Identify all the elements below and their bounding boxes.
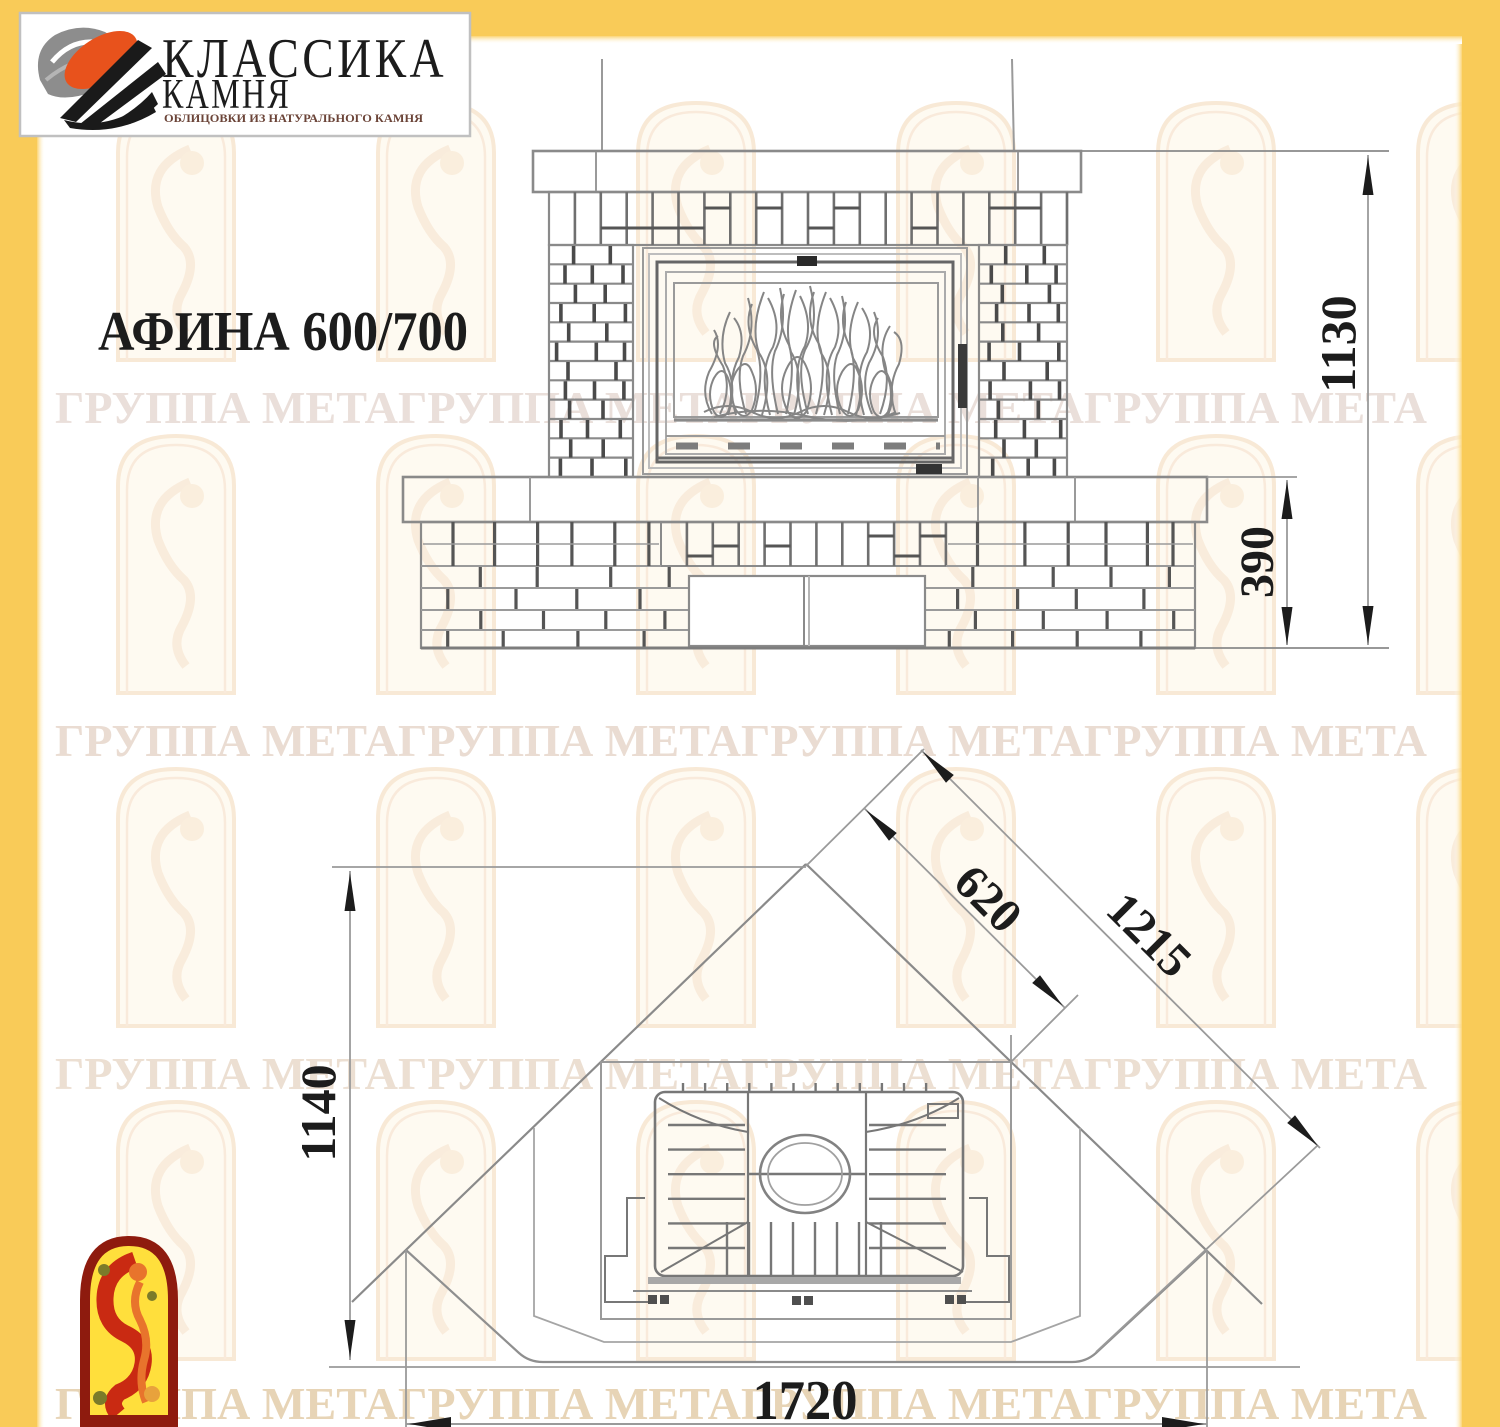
svg-text:1720: 1720	[753, 1370, 858, 1427]
svg-text:ГРУППА МЕТАГРУППА МЕТАГРУППА М: ГРУППА МЕТАГРУППА МЕТАГРУППА МЕТАГРУППА …	[55, 715, 1427, 766]
svg-text:ГРУППА МЕТАГРУППА МЕТАГРУППА М: ГРУППА МЕТАГРУППА МЕТАГРУППА МЕТАГРУППА …	[55, 1378, 1427, 1427]
svg-text:1130: 1130	[1310, 295, 1366, 392]
svg-text:ОБЛИЦОВКИ ИЗ НАТУРАЛЬНОГО КАМН: ОБЛИЦОВКИ ИЗ НАТУРАЛЬНОГО КАМНЯ	[164, 111, 423, 125]
svg-text:390: 390	[1231, 526, 1284, 598]
svg-text:1140: 1140	[290, 1064, 346, 1161]
svg-text:АФИНА 600/700: АФИНА 600/700	[98, 301, 468, 363]
